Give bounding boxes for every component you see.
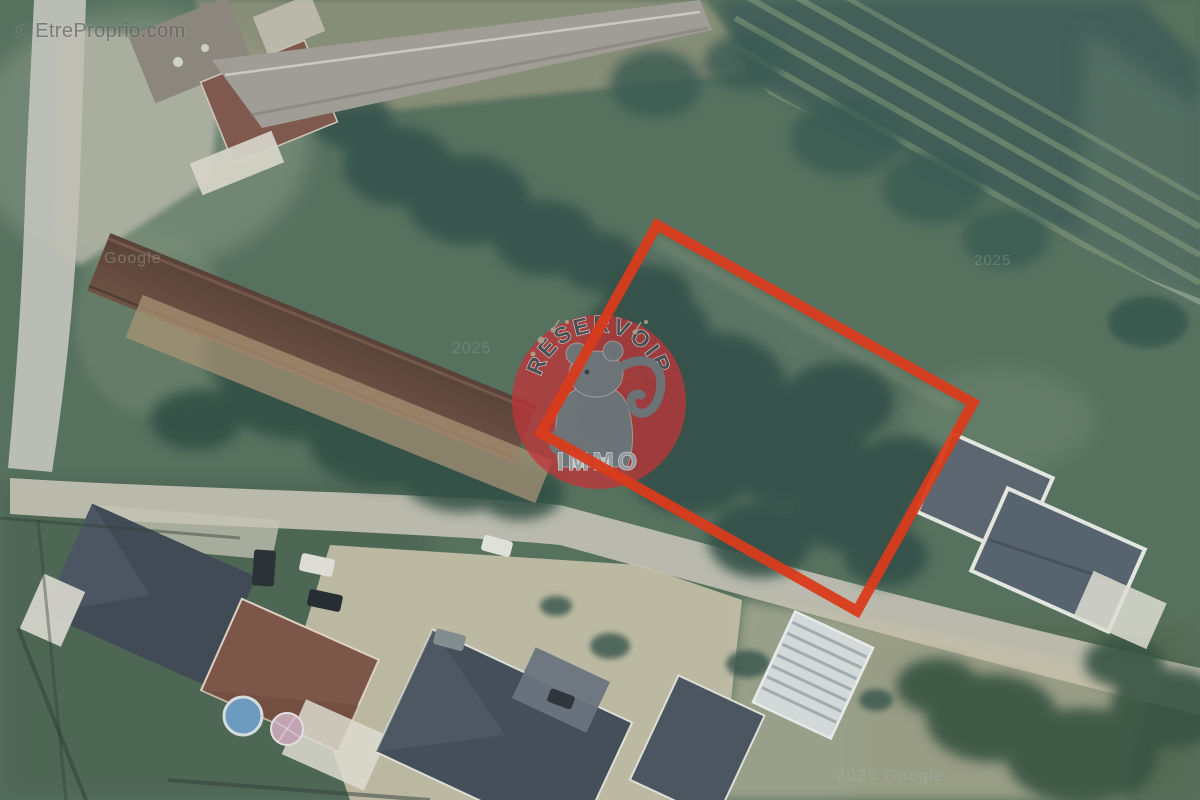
fences xyxy=(0,518,430,800)
site-watermark: © EtreProprio.com xyxy=(14,20,186,43)
pool xyxy=(224,697,262,735)
map-imagery-watermark-center: 2025 xyxy=(452,340,492,358)
logo-immo-text: IMMO xyxy=(557,448,641,476)
map-imagery-watermark-top-right: 2025 xyxy=(974,252,1011,269)
map-imagery-watermark-left: Google xyxy=(104,250,162,268)
greenhouse xyxy=(753,612,873,739)
map-imagery-watermark-bottom-right: 2025 Google xyxy=(836,766,944,786)
vineyard-rows xyxy=(735,0,1200,339)
umbrella xyxy=(271,713,303,745)
satellite-listing-image: RESERVOIR IMMO Google 2025 2025 2025 Goo… xyxy=(0,0,1200,800)
trees-vineyard xyxy=(610,34,1050,268)
cars xyxy=(252,534,576,710)
agency-logo-watermark: RESERVOIR IMMO xyxy=(489,292,709,512)
trees-top xyxy=(312,90,640,292)
